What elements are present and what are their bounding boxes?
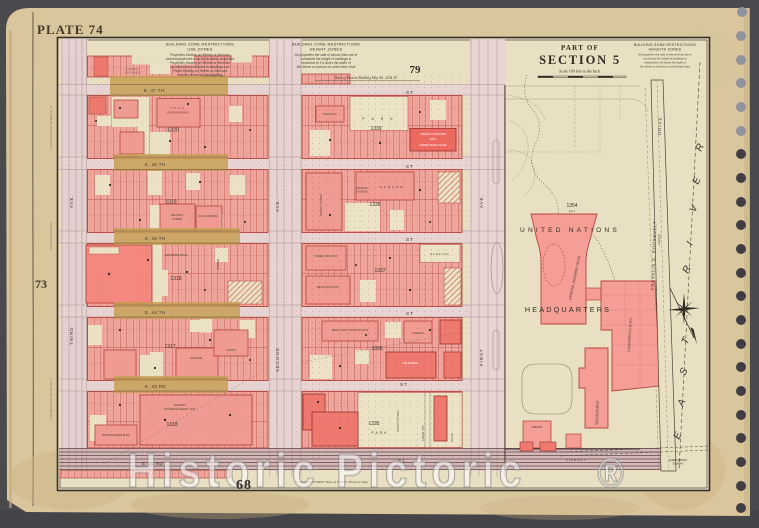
svg-text:E. 46 TH: E. 46 TH bbox=[145, 162, 165, 167]
svg-text:Copyright South side May No 3: Copyright South side May No 3 bbox=[49, 378, 53, 420]
svg-text:SUBWAY: SUBWAY bbox=[673, 462, 684, 466]
svg-text:Prince Richmond 2 A: Prince Richmond 2 A bbox=[49, 222, 53, 250]
svg-text:DRIVE: DRIVE bbox=[657, 116, 663, 135]
svg-text:VIADUCT: VIADUCT bbox=[566, 458, 586, 462]
svg-text:the Street or Avenue on which: the Street or Avenue on which they front bbox=[640, 65, 690, 69]
svg-text:SECTION 5: SECTION 5 bbox=[539, 53, 621, 67]
svg-text:the Street or Avenue on which: the Street or Avenue on which they front bbox=[297, 65, 357, 69]
svg-text:ST.: ST. bbox=[400, 382, 410, 387]
svg-text:PLATE 74: PLATE 74 bbox=[37, 22, 104, 37]
svg-text:USE ZONES: USE ZONES bbox=[187, 47, 212, 52]
svg-text:Former Richmond Hill Map No 31: Former Richmond Hill Map No 31 bbox=[49, 105, 53, 150]
svg-text:73: 73 bbox=[35, 277, 47, 291]
svg-text:BUILDING ZONE RESTRICTIONS: BUILDING ZONE RESTRICTIONS bbox=[634, 43, 696, 47]
svg-text:AVE.: AVE. bbox=[479, 194, 484, 208]
svg-text:LIBRARY: LIBRARY bbox=[531, 425, 542, 429]
svg-text:E. 47 TH: E. 47 TH bbox=[144, 88, 164, 93]
svg-text:68: 68 bbox=[236, 478, 252, 493]
svg-text:ST: ST bbox=[406, 311, 414, 316]
svg-text:E. 44 TH: E. 44 TH bbox=[145, 310, 165, 315]
svg-text:HEIGHT ZONES: HEIGHT ZONES bbox=[310, 47, 343, 52]
svg-text:"TURTLE BAY FARM": "TURTLE BAY FARM" bbox=[200, 75, 227, 78]
svg-text:AVE.: AVE. bbox=[69, 194, 74, 208]
svg-text:E. 45 TH: E. 45 TH bbox=[145, 236, 165, 241]
svg-text:SECOND: SECOND bbox=[275, 347, 280, 372]
svg-text:Historic Pictoric: Historic Pictoric bbox=[127, 445, 526, 498]
svg-text:79: 79 bbox=[410, 64, 422, 76]
svg-text:HEADQUARTERS: HEADQUARTERS bbox=[525, 305, 611, 314]
svg-text:FIRST: FIRST bbox=[479, 348, 484, 366]
svg-text:QUEENSBORO: QUEENSBORO bbox=[669, 458, 688, 462]
svg-text:ST: ST bbox=[406, 164, 414, 169]
svg-text:Scale 160 feet to the Inch.: Scale 160 feet to the Inch. bbox=[559, 69, 601, 74]
svg-text:UNITED NATIONS: UNITED NATIONS bbox=[520, 227, 620, 234]
svg-text:HEIGHTH ZONES: HEIGHTH ZONES bbox=[649, 48, 682, 52]
svg-text:®: ® bbox=[598, 450, 625, 496]
svg-text:THIRD: THIRD bbox=[69, 327, 74, 345]
svg-text:E. 43 RD: E. 43 RD bbox=[145, 384, 166, 389]
svg-text:Lot 1: Lot 1 bbox=[568, 209, 576, 213]
svg-text:POST ROAD: POST ROAD bbox=[124, 72, 140, 75]
svg-text:ST.: ST. bbox=[406, 90, 416, 95]
svg-text:ST: ST bbox=[406, 237, 414, 242]
svg-text:PART OF: PART OF bbox=[561, 44, 599, 52]
svg-text:Base of Present Building May: Base of Present Building May No. 24 & 29 bbox=[335, 76, 397, 80]
svg-text:(UNDER): (UNDER) bbox=[657, 234, 661, 245]
svg-text:AVE.: AVE. bbox=[275, 198, 280, 212]
